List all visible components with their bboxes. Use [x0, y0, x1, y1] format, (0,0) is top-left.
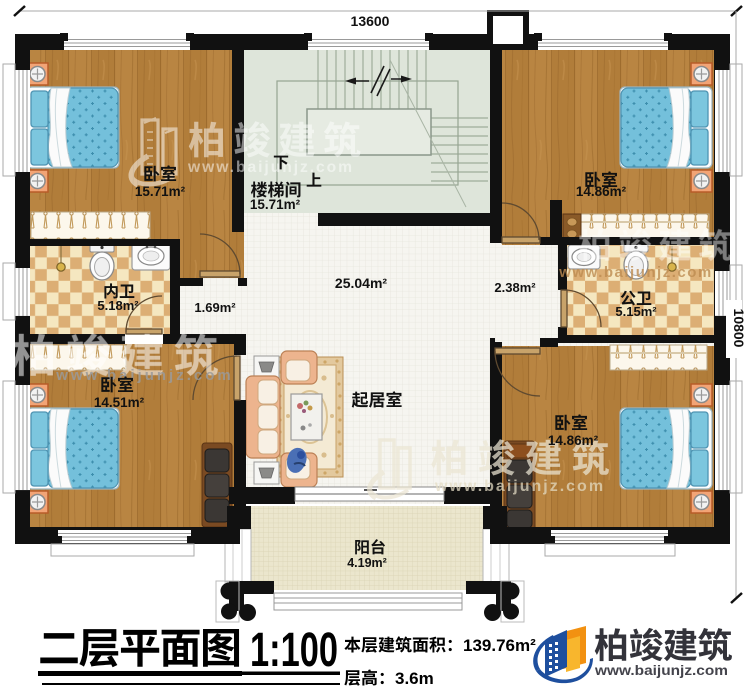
svg-text:139.76m²: 139.76m²: [463, 636, 536, 655]
svg-text:25.04m²: 25.04m²: [335, 275, 387, 291]
svg-text:2.38m²: 2.38m²: [494, 280, 536, 295]
svg-text:3.6m: 3.6m: [395, 669, 434, 688]
svg-text:15.71m²: 15.71m²: [135, 184, 186, 199]
svg-text:14.86m²: 14.86m²: [576, 184, 627, 199]
svg-text:1:100: 1:100: [250, 624, 338, 677]
svg-text:14.86m²: 14.86m²: [548, 433, 599, 448]
svg-text:www.baijunjz.com: www.baijunjz.com: [187, 159, 354, 176]
svg-text:5.18m²: 5.18m²: [97, 298, 139, 313]
svg-text:5.15m²: 5.15m²: [615, 304, 657, 319]
svg-text:14.51m²: 14.51m²: [94, 395, 145, 410]
svg-text:www.baijunjz.com: www.baijunjz.com: [434, 478, 605, 495]
svg-text:13600: 13600: [351, 13, 390, 29]
svg-text:4.19m²: 4.19m²: [347, 556, 387, 570]
svg-text:10800: 10800: [731, 309, 747, 348]
svg-text:www.baijunjz.com: www.baijunjz.com: [594, 663, 728, 678]
svg-text:www.baijunjz.com: www.baijunjz.com: [55, 367, 233, 384]
svg-text:www.baijunjz.com: www.baijunjz.com: [558, 264, 712, 281]
svg-text:1.69m²: 1.69m²: [194, 300, 236, 315]
svg-text:15.71m²: 15.71m²: [250, 197, 301, 212]
